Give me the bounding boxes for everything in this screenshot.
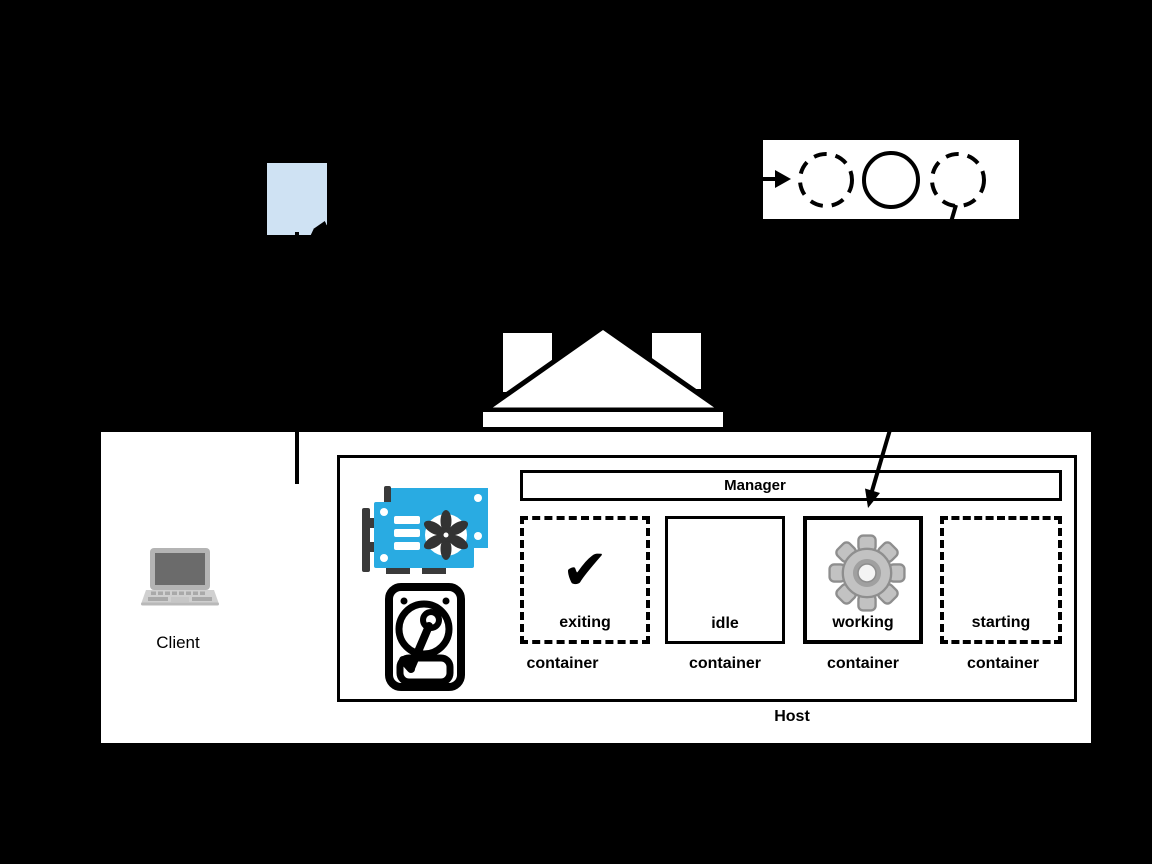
building-base: [483, 412, 723, 427]
container-box-idle: idle: [665, 516, 785, 644]
gear-icon: [828, 534, 906, 612]
container-state-label: idle: [668, 615, 782, 633]
container-box-working: working: [803, 516, 923, 644]
laptop-screen: [155, 553, 205, 585]
hard-disk-icon: [384, 582, 466, 692]
building-icon: [480, 320, 730, 432]
container-type-label: container: [803, 655, 923, 673]
gpu-icon: [362, 486, 492, 574]
laptop-icon: [141, 547, 219, 611]
container-type-label: container: [665, 655, 785, 673]
container-type-label: container: [942, 655, 1064, 673]
gpu-bracket: [362, 508, 370, 572]
container-state-label: working: [807, 614, 919, 632]
container-state-label: starting: [944, 614, 1058, 632]
container-box-exiting: ✔ exiting: [520, 516, 650, 644]
container-box-starting: starting: [940, 516, 1062, 644]
manager-label: Manager: [724, 477, 786, 494]
laptop-bottom-edge: [141, 603, 219, 606]
client-label: Client: [128, 633, 228, 653]
checkmark-icon: ✔: [524, 542, 646, 598]
diagram-canvas: Client Host: [0, 0, 1152, 864]
document-icon: [267, 163, 327, 235]
container-state-label: exiting: [524, 614, 646, 632]
laptop-trackpad: [171, 597, 189, 602]
container-type-label: container: [505, 655, 620, 673]
manager-bar: Manager: [520, 470, 1062, 501]
host-label: Host: [752, 708, 832, 726]
lifecycle-panel: [763, 140, 1019, 219]
